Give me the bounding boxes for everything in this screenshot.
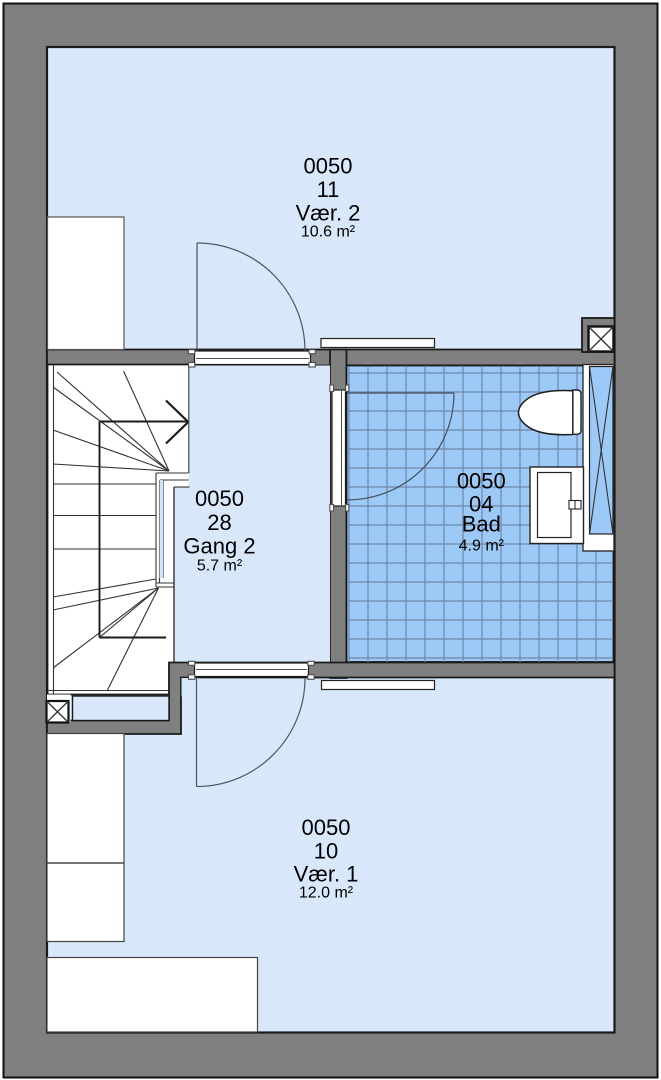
svg-text:Bad: Bad — [462, 512, 501, 537]
svg-text:10: 10 — [314, 839, 338, 864]
svg-text:Vær. 1: Vær. 1 — [294, 861, 359, 886]
svg-text:Vær. 2: Vær. 2 — [296, 200, 361, 225]
svg-text:12.0 m²: 12.0 m² — [299, 885, 354, 902]
svg-text:0050: 0050 — [457, 468, 506, 493]
svg-text:4.9 m²: 4.9 m² — [459, 538, 505, 555]
svg-text:0050: 0050 — [195, 486, 244, 511]
svg-text:11: 11 — [317, 177, 340, 202]
svg-text:0050: 0050 — [304, 154, 353, 179]
svg-text:10.6 m²: 10.6 m² — [301, 224, 356, 241]
svg-text:5.7 m²: 5.7 m² — [197, 558, 243, 575]
svg-text:0050: 0050 — [302, 815, 351, 840]
svg-text:28: 28 — [207, 510, 231, 535]
svg-text:Gang 2: Gang 2 — [183, 534, 255, 559]
